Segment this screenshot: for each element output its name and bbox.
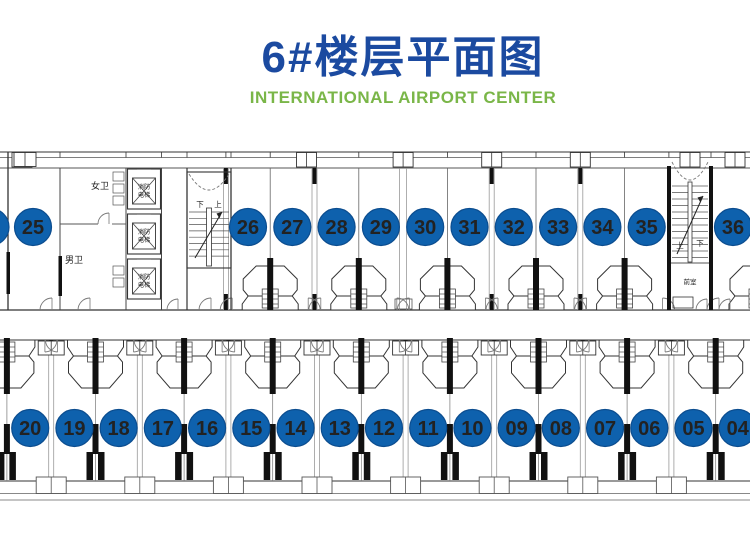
unit-number: 28: [325, 217, 347, 239]
unit-circle-05: 05: [675, 410, 712, 447]
unit-number: 27: [281, 217, 303, 239]
unit-number: 13: [329, 418, 351, 440]
unit-number: 30: [414, 217, 436, 239]
unit-number: 10: [461, 418, 483, 440]
fire-elevator-label-row1: 消防: [138, 228, 150, 236]
unit-number: 04: [727, 418, 750, 440]
unit-number: 29: [370, 217, 392, 239]
unit-circle-17: 17: [144, 410, 181, 447]
unit-circle-36: 36: [715, 209, 750, 246]
unit-number: 20: [19, 418, 41, 440]
unit-number: 07: [594, 418, 616, 440]
unit-circle-31: 31: [451, 209, 488, 246]
unit-circle-34: 34: [584, 209, 621, 246]
unit-number: 36: [722, 217, 744, 239]
unit-circle-30: 30: [407, 209, 444, 246]
fire-elevator-shaft-1: 消防电梯: [128, 169, 161, 209]
unit-number: 25: [22, 217, 44, 239]
unit-circle-10: 10: [454, 410, 491, 447]
unit-circle-20: 20: [12, 410, 49, 447]
left-stair-up-label: 上: [214, 200, 222, 209]
unit-circle-14: 14: [277, 410, 314, 447]
unit-circle-11: 11: [410, 410, 447, 447]
unit-circle-12: 12: [365, 410, 402, 447]
unit-number: 08: [550, 418, 572, 440]
unit-circle-32: 32: [495, 209, 532, 246]
fire-elevator-shaft-2: 消防电梯: [128, 214, 161, 254]
floor-plan-drawing: 消防电梯消防电梯消防电梯 女卫 男卫 下 上 上 下 前室 2526272829…: [0, 0, 750, 560]
fire-elevator-label-row2: 电梯: [138, 281, 150, 289]
unit-circle-09: 09: [498, 410, 535, 447]
unit-circle-06: 06: [631, 410, 668, 447]
unit-circle-16: 16: [189, 410, 226, 447]
unit-number: 18: [108, 418, 130, 440]
fire-elevator-label-row2: 电梯: [138, 236, 150, 244]
unit-number: 05: [682, 418, 704, 440]
unit-number: 15: [240, 418, 262, 440]
fire-elevator-label-row1: 消防: [138, 273, 150, 281]
unit-circle-07: 07: [587, 410, 624, 447]
unit-number: 19: [63, 418, 85, 440]
fire-elevator-label-row1: 消防: [138, 183, 150, 191]
unit-number: 09: [505, 418, 527, 440]
unit-circle-29: 29: [362, 209, 399, 246]
fire-elevator-label-row2: 电梯: [138, 191, 150, 199]
unit-number: 12: [373, 418, 395, 440]
unit-circle-04: 04: [719, 410, 750, 447]
unit-circle-25: 25: [15, 209, 52, 246]
unit-circle-28: 28: [318, 209, 355, 246]
unit-circle-18: 18: [100, 410, 137, 447]
unit-circle-27: 27: [274, 209, 311, 246]
left-stair-down-label: 下: [196, 200, 204, 209]
womens-restroom-label: 女卫: [91, 180, 109, 191]
mens-restroom-label: 男卫: [65, 255, 83, 265]
floor-plan-page: 6#楼层平面图 INTERNATIONAL AIRPORT CENTER 消防电…: [0, 0, 750, 560]
right-stair-down-label: 下: [696, 239, 704, 248]
unit-circle-33: 33: [540, 209, 577, 246]
unit-circle-19: 19: [56, 410, 93, 447]
fire-elevator-shaft-3: 消防电梯: [128, 259, 161, 299]
anteroom-label: 前室: [684, 277, 698, 286]
unit-circle-35: 35: [628, 209, 665, 246]
unit-circles-layer: 2526272829303132333435362019181716151413…: [0, 209, 750, 447]
unit-number: 17: [152, 418, 174, 440]
unit-circle-08: 08: [542, 410, 579, 447]
unit-number: 14: [284, 418, 307, 440]
unit-number: 31: [458, 217, 480, 239]
unit-circle-26: 26: [230, 209, 267, 246]
unit-number: 26: [237, 217, 259, 239]
unit-circle-13: 13: [321, 410, 358, 447]
unit-number: 11: [418, 418, 439, 440]
unit-number: 35: [636, 217, 658, 239]
unit-number: 06: [638, 418, 660, 440]
unit-number: 16: [196, 418, 218, 440]
unit-circle-15: 15: [233, 410, 270, 447]
unit-number: 32: [503, 217, 525, 239]
unit-number: 34: [591, 217, 614, 239]
right-stair-up-label: 上: [676, 241, 684, 250]
left-staircase: [187, 172, 231, 310]
unit-number: 33: [547, 217, 569, 239]
